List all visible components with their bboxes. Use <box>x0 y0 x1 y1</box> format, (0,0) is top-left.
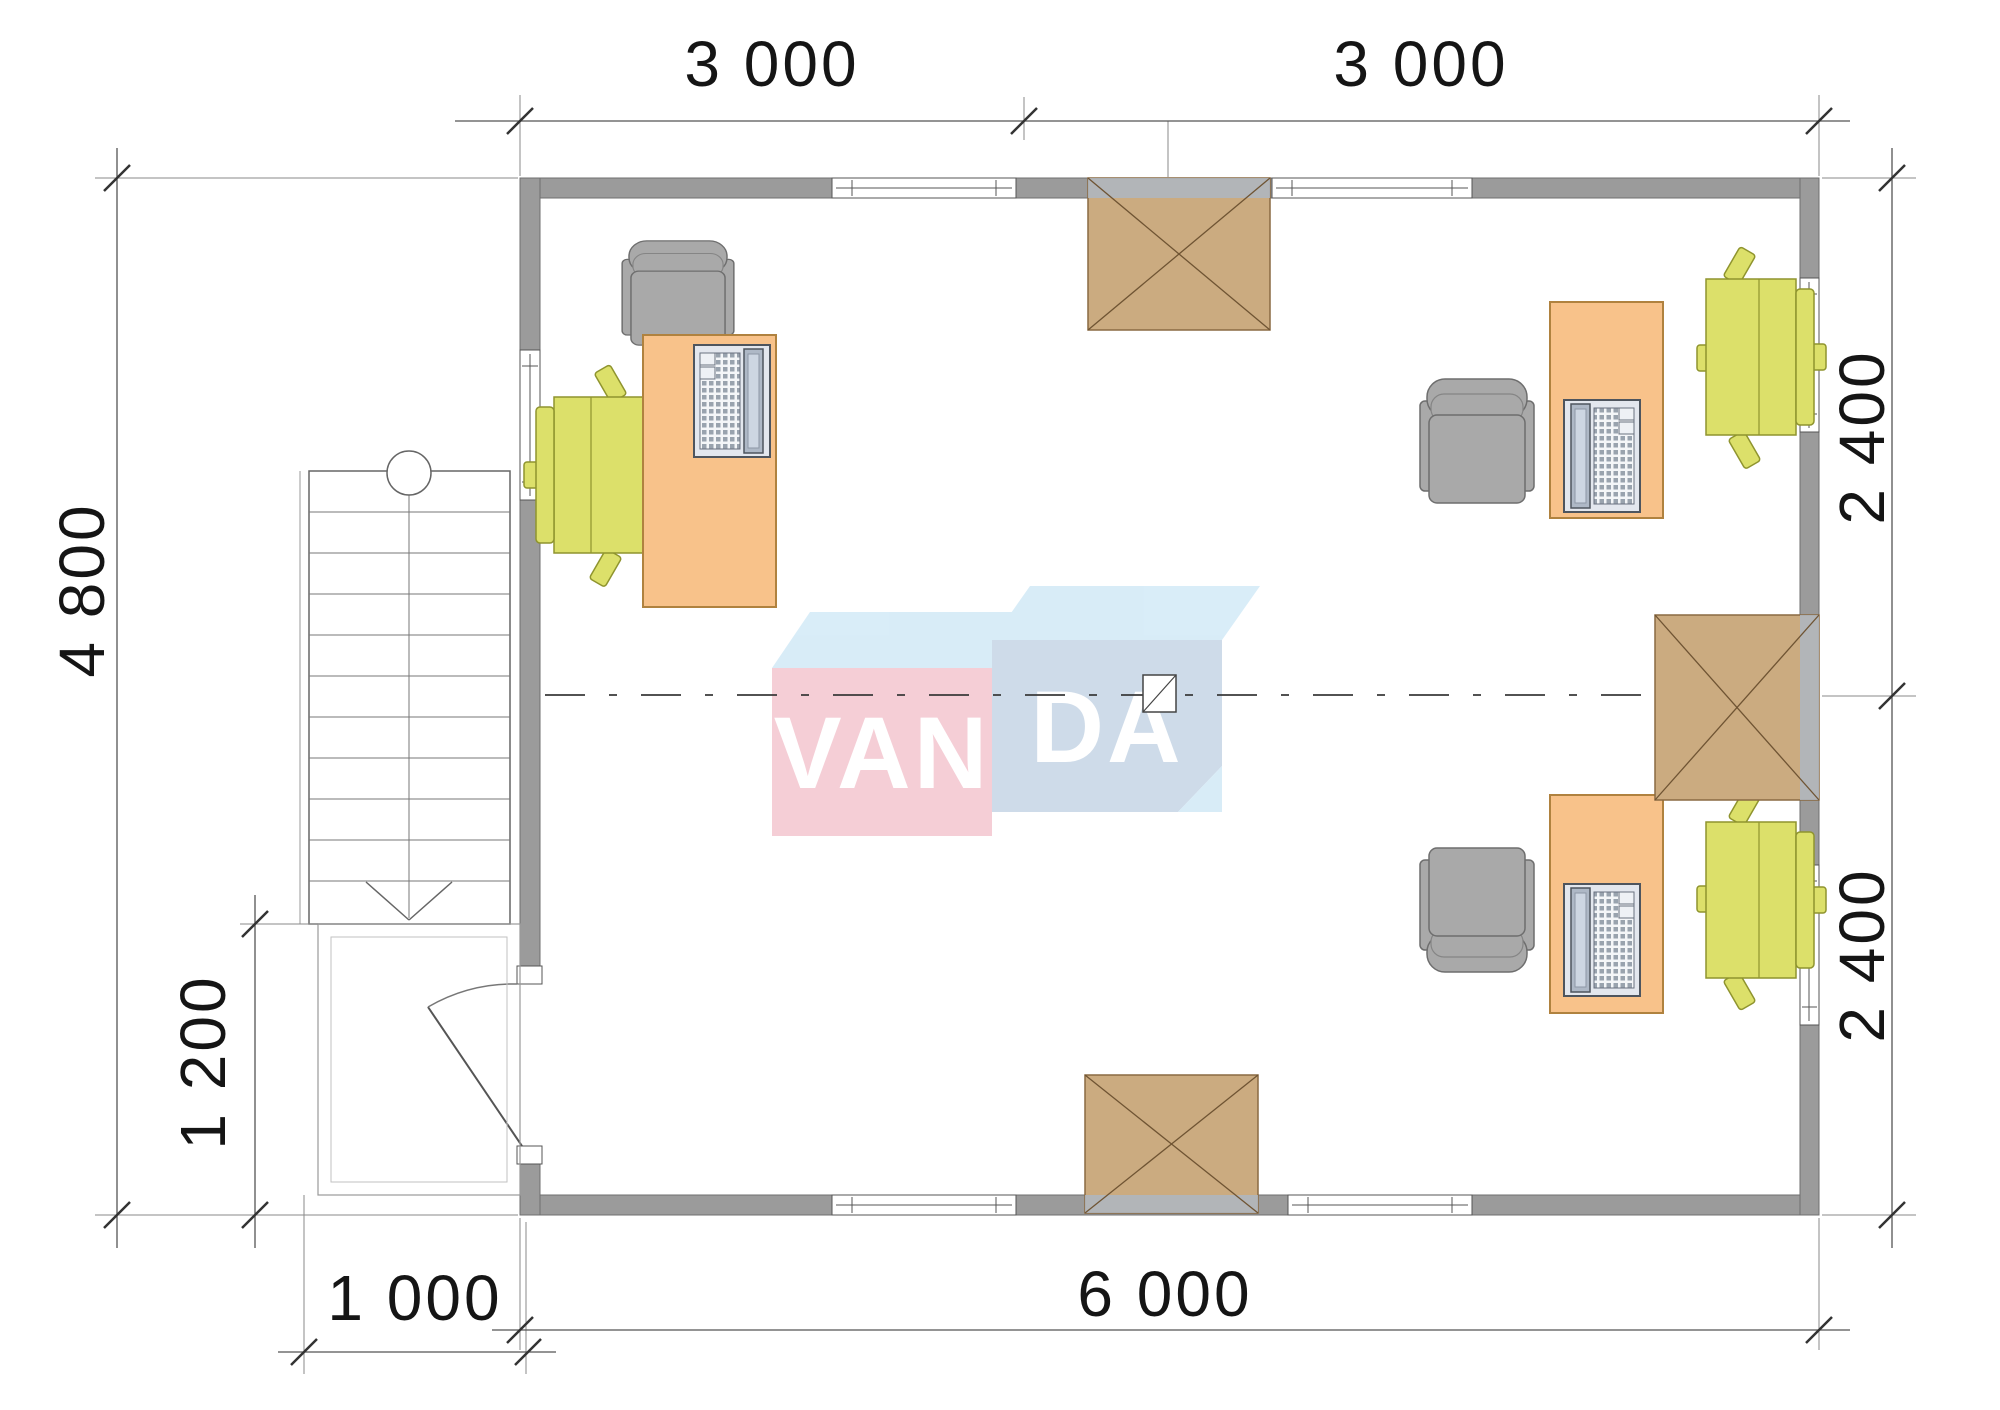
logo-blue-top-face <box>992 586 1260 640</box>
door-swing-arc <box>428 984 517 1007</box>
laptop <box>1564 400 1640 512</box>
stair-start-circle <box>387 451 431 495</box>
entrance-door <box>428 966 544 1164</box>
gray-armchair <box>622 241 734 345</box>
laptop <box>694 345 770 457</box>
workstation-lower-right <box>1420 788 1826 1013</box>
dim-label-top-left: 3 000 <box>684 32 859 96</box>
dim-label-bottom-porch: 1 000 <box>327 1266 502 1330</box>
dim-label-left-total: 4 800 <box>50 502 114 677</box>
door-jamb-top <box>517 966 542 984</box>
gray-armchair <box>1420 848 1534 972</box>
laptop <box>1564 884 1640 996</box>
window-bottom-right <box>1288 1195 1472 1215</box>
crossed-box-right <box>1655 615 1819 800</box>
dim-label-right-upper: 2 400 <box>1830 349 1894 524</box>
door-opening <box>518 984 544 1146</box>
workstation-upper-right <box>1420 247 1826 518</box>
window-top-right <box>1272 178 1472 198</box>
window-bottom-left <box>832 1195 1016 1215</box>
logo-pink-top-face <box>772 612 1030 668</box>
door-jamb-bottom <box>517 1146 542 1164</box>
dim-label-right-lower: 2 400 <box>1830 867 1894 1042</box>
window-top-left <box>832 178 1016 198</box>
dim-label-top-right: 3 000 <box>1333 32 1508 96</box>
axis-square-marker <box>1143 675 1176 712</box>
floor-plan-drawing: VAN DA <box>0 0 2000 1410</box>
staircase <box>300 451 510 924</box>
logo-text-van: VAN <box>774 696 991 810</box>
porch <box>318 924 520 1195</box>
vanda-logo-watermark: VAN DA <box>772 586 1260 836</box>
crossed-box-bottom <box>1085 1075 1258 1213</box>
door-leaf <box>428 1007 522 1146</box>
green-chair <box>524 365 653 588</box>
floor-plan-canvas: VAN DA <box>0 0 2000 1410</box>
dim-label-bottom-total: 6 000 <box>1077 1262 1252 1326</box>
workstation-left <box>524 241 776 607</box>
dim-label-left-porch: 1 200 <box>171 974 235 1149</box>
crossed-box-top <box>1088 178 1270 330</box>
gray-armchair <box>1420 379 1534 503</box>
